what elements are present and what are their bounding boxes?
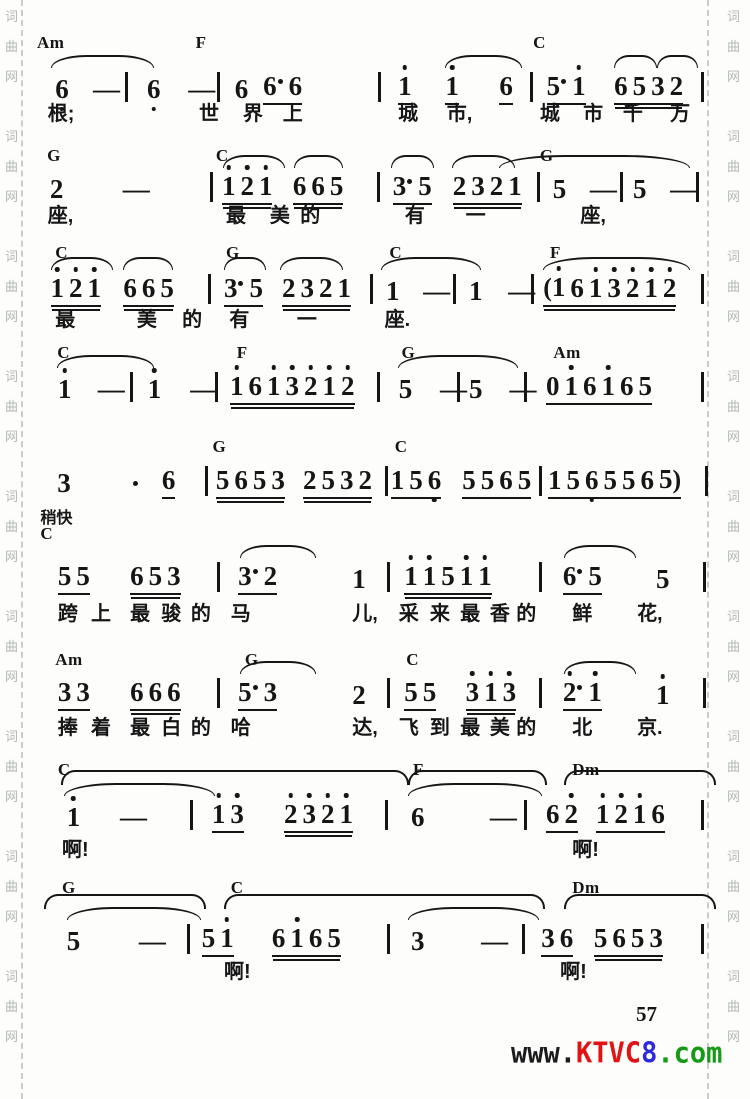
note-digit: 1 — [404, 562, 418, 590]
note: 3 — [57, 469, 71, 497]
note-group — [378, 70, 381, 103]
note-digit: 2 — [614, 800, 628, 828]
slur-arc — [564, 894, 717, 909]
note: 6 — [614, 72, 628, 100]
note: 0 — [546, 372, 560, 400]
note-group — [385, 464, 388, 497]
note-group — [524, 370, 527, 403]
note: 3 — [466, 678, 480, 706]
note-digit: 1 — [445, 72, 459, 100]
lyric-syllable: 美 — [490, 718, 510, 738]
chord-label: C — [406, 650, 419, 670]
octave-dot-above — [309, 365, 314, 370]
note-group — [620, 170, 623, 203]
note-group: 2321 — [282, 272, 351, 307]
note-group: 13 — [212, 798, 244, 833]
octave-dot-above — [235, 793, 240, 798]
note-digit: 3 — [224, 274, 238, 302]
slur-arc — [240, 545, 316, 558]
note-digit: 1 — [588, 678, 602, 706]
note-digit: 2 — [50, 175, 64, 203]
note-digit: 6 — [546, 800, 560, 828]
note-digit: 6 — [570, 274, 584, 302]
note-group: 6 — [55, 70, 69, 103]
side-watermark-char: 词 — [727, 610, 740, 623]
note-group: 5 — [469, 370, 483, 403]
barline — [387, 924, 390, 954]
note: 5 — [202, 924, 216, 952]
side-watermark-char: 词 — [5, 250, 18, 263]
note-group: 1 — [148, 370, 162, 403]
note-group: 6 — [235, 70, 249, 103]
note: 6 — [499, 466, 513, 494]
chord-label: F — [237, 343, 248, 363]
octave-dot-above — [649, 267, 654, 272]
note-group — [539, 676, 542, 709]
note: 1 — [230, 372, 244, 400]
octave-dot-above — [600, 793, 605, 798]
note-digit: 0 — [546, 372, 560, 400]
octave-dot-above — [403, 65, 408, 70]
note: 5 — [481, 466, 495, 494]
note-group: — — [98, 370, 123, 403]
note-group: 1 — [656, 676, 670, 709]
note-digit: 2 — [358, 466, 372, 494]
watermark-text-segment: 8 — [641, 1037, 657, 1070]
note: 2 — [453, 172, 467, 200]
note-digit: 3 — [286, 372, 300, 400]
note-digit: 6 — [499, 72, 513, 100]
note-digit: 3 — [301, 274, 315, 302]
octave-dot-above — [569, 365, 574, 370]
augmentation-dot — [278, 79, 283, 84]
note-digit: 1 — [484, 678, 498, 706]
note: 1 — [478, 562, 492, 590]
octave-dot-above — [326, 793, 331, 798]
note-digit: 3 — [167, 562, 181, 590]
note-group: 1565565) — [548, 464, 681, 499]
note: 5 — [638, 372, 652, 400]
note-digit: 5 — [659, 465, 673, 493]
side-watermark-char: 曲 — [727, 280, 740, 293]
lyric-syllable: 儿, — [352, 604, 378, 624]
side-watermark-char: 曲 — [5, 760, 18, 773]
note-digit: 5 — [409, 466, 423, 494]
note-digit: 3 — [503, 678, 517, 706]
barline — [524, 800, 527, 830]
note-group — [701, 70, 704, 103]
note-group: — — [123, 170, 148, 203]
octave-dot-above — [577, 65, 582, 70]
note-group — [705, 464, 708, 497]
lyric-syllable: 啊! — [224, 962, 251, 982]
note-digit: 2 — [303, 466, 317, 494]
note-group: 6 — [162, 464, 176, 499]
lyric-syllable: 最 — [55, 310, 75, 330]
note-group: — — [440, 370, 465, 403]
barline — [378, 72, 381, 102]
octave-dot-above — [152, 368, 157, 373]
note-digit: 6 — [640, 466, 654, 494]
note-digit: 5 — [481, 466, 495, 494]
note-group: 6 — [411, 798, 425, 831]
duration-dash: — — [190, 375, 215, 403]
note: 6 — [162, 466, 176, 494]
note-group: 156 — [391, 464, 442, 499]
note-group — [701, 922, 704, 955]
note-digit: 6 — [560, 924, 574, 952]
duration-dash: — — [98, 375, 123, 403]
lyric-syllable: 马 — [231, 604, 251, 624]
note-digit: 5 — [633, 175, 647, 203]
note: 5 — [58, 562, 72, 590]
note: 5 — [249, 274, 263, 302]
note: 5 — [238, 678, 259, 706]
note: 6 — [640, 466, 654, 494]
note-digit: 1 — [391, 466, 405, 494]
note-digit: 6 — [234, 466, 248, 494]
note-group: (1613212 — [543, 272, 676, 307]
note-group — [531, 272, 534, 305]
note-digit: 5 — [633, 72, 647, 100]
note-group: — — [670, 170, 695, 203]
note: 2 — [319, 274, 333, 302]
octave-dot-above — [593, 267, 598, 272]
note-group: 55 — [404, 676, 436, 711]
barline — [205, 466, 208, 496]
barline — [215, 372, 218, 402]
note: 5 — [399, 375, 413, 403]
octave-dot-below — [152, 107, 157, 112]
note-group: — — [93, 70, 118, 103]
note-digit: 3 — [264, 678, 278, 706]
barline — [696, 172, 699, 202]
note-group — [130, 370, 133, 403]
note-group: 5 — [67, 922, 81, 955]
octave-dot-below — [589, 498, 594, 503]
note-group — [539, 560, 542, 593]
note-group: 6 — [147, 70, 161, 103]
note: 1 — [148, 375, 162, 403]
barline — [539, 466, 542, 496]
side-watermark-char: 网 — [5, 910, 18, 923]
close-parenthesis: ) — [672, 465, 681, 494]
note: 1 — [589, 274, 603, 302]
side-watermark-char: 网 — [727, 430, 740, 443]
note-group: 65 — [563, 560, 602, 595]
side-watermark-char: 曲 — [727, 160, 740, 173]
note: 5 — [327, 924, 341, 952]
chord-label: Am — [553, 343, 580, 363]
note-digit: 1 — [267, 372, 281, 400]
note: 1 — [548, 466, 562, 494]
note-digit: 6 — [428, 466, 442, 494]
note: 5 — [553, 175, 567, 203]
note-group: 1 — [352, 560, 366, 593]
side-watermark-char: 网 — [727, 310, 740, 323]
note-digit: 5 — [656, 565, 670, 593]
note-group: 3 — [411, 922, 425, 955]
note-group: 62 — [546, 798, 578, 833]
octave-dot-above — [450, 65, 455, 70]
octave-dot-above — [427, 555, 432, 560]
sheet-music-page: 词曲网词曲网词曲网词曲网词曲网词曲网词曲网词曲网词曲网 词曲网词曲网词曲网词曲网… — [0, 0, 750, 1099]
lyric-syllable: 的 — [182, 310, 202, 330]
watermark-text-segment: KTVC — [576, 1037, 641, 1070]
note: 5 — [216, 466, 230, 494]
note-digit: 1 — [596, 800, 610, 828]
note-group: 3 — [57, 464, 71, 497]
octave-dot-above — [507, 671, 512, 676]
note-digit: 5 — [76, 562, 90, 590]
side-watermark-char: 词 — [5, 130, 18, 143]
note: 5 — [76, 562, 90, 590]
note-group — [537, 170, 540, 203]
lyric-syllable: 最 — [130, 718, 150, 738]
lyric-syllable: 的 — [191, 604, 211, 624]
note: 6 — [289, 72, 303, 100]
note-digit: 6 — [123, 274, 137, 302]
note: 5 — [588, 562, 602, 590]
chord-label: C — [40, 524, 53, 544]
note-digit: 1 — [220, 924, 234, 952]
barline — [705, 466, 708, 496]
chord-label: C — [533, 33, 546, 53]
note-group: — — [423, 272, 448, 305]
barline — [377, 172, 380, 202]
note-digit: 1 — [212, 800, 226, 828]
note-digit: 5 — [404, 678, 418, 706]
chord-label: F — [196, 33, 207, 53]
note: 6 — [263, 72, 284, 100]
note: 6 — [130, 562, 144, 590]
octave-dot-above — [409, 555, 414, 560]
note-digit: 5 — [462, 466, 476, 494]
note-digit: 1 — [323, 372, 337, 400]
note: 6 — [620, 372, 634, 400]
note-group — [217, 560, 220, 593]
barline — [539, 678, 542, 708]
note-group: 665 — [293, 170, 344, 205]
note-digit: 6 — [311, 172, 325, 200]
note-group: — — [188, 70, 213, 103]
side-watermark-char: 词 — [727, 130, 740, 143]
note-group — [208, 272, 211, 305]
lyric-syllable: 座. — [385, 310, 411, 330]
note-group: 1 — [58, 370, 72, 403]
note: 2 — [358, 466, 372, 494]
note-group: 5 — [656, 560, 670, 593]
slur-arc — [240, 661, 316, 674]
note-group — [205, 464, 208, 497]
note-digit: 3 — [76, 678, 90, 706]
note-digit: 5 — [603, 466, 617, 494]
note-group — [387, 676, 390, 709]
barline — [385, 800, 388, 830]
lyric-syllable: 上 — [283, 104, 303, 124]
duration-dash: — — [508, 277, 533, 305]
side-watermark-char: 网 — [5, 70, 18, 83]
note-group — [210, 170, 213, 203]
note: 5 — [330, 172, 344, 200]
note: 3 — [340, 466, 354, 494]
note-group: 1 — [386, 272, 400, 305]
side-watermark-char: 词 — [727, 730, 740, 743]
side-watermark-char: 曲 — [5, 640, 18, 653]
note-group: 1 — [67, 798, 81, 831]
barline — [530, 72, 533, 102]
octave-dot-above — [216, 793, 221, 798]
octave-dot-above — [612, 267, 617, 272]
side-watermark-char: 词 — [5, 970, 18, 983]
duration-dash: — — [139, 927, 164, 955]
note: 2 — [303, 466, 317, 494]
note-digit: 5 — [202, 924, 216, 952]
note: 1 — [460, 562, 474, 590]
note-digit: 3 — [651, 72, 665, 100]
slur-arc — [408, 907, 538, 920]
note-group — [530, 70, 533, 103]
octave-dot-above — [74, 267, 79, 272]
barline — [370, 274, 373, 304]
note-group: 5565 — [462, 464, 531, 499]
octave-dot-above — [289, 793, 294, 798]
octave-dot-above — [225, 917, 230, 922]
note-digit: 5 — [423, 678, 437, 706]
note: 3 — [607, 274, 621, 302]
note-digit: 1 — [230, 372, 244, 400]
lyric-syllable: 鲜 — [572, 604, 592, 624]
note: 2 — [563, 678, 584, 706]
octave-dot-above — [567, 671, 572, 676]
note: 6 — [499, 72, 513, 100]
note: 5 — [518, 466, 532, 494]
note: 1 — [222, 172, 236, 200]
note: 5) — [659, 465, 681, 494]
note: 1 — [352, 565, 366, 593]
note-group: 6165 — [272, 922, 341, 957]
note: 5 — [594, 924, 608, 952]
note-digit: 6 — [612, 924, 626, 952]
note: 1 — [88, 274, 102, 302]
lyric-syllable: 世 — [199, 104, 219, 124]
note-digit: 5 — [631, 924, 645, 952]
duration-dash: — — [490, 803, 515, 831]
note-group — [215, 370, 218, 403]
note-group: 53 — [238, 676, 277, 711]
note-group — [703, 676, 706, 709]
note: 3 — [264, 678, 278, 706]
note: 1 — [338, 274, 352, 302]
lyric-syllable: 啊! — [572, 840, 599, 860]
augmentation-dot — [253, 569, 258, 574]
lyric-syllable: 座, — [48, 206, 74, 226]
note-digit: 1 — [633, 800, 647, 828]
note: 1 — [656, 681, 670, 709]
note-group: 665 — [123, 272, 174, 307]
note-digit: 1 — [338, 274, 352, 302]
note-digit: 2 — [319, 274, 333, 302]
lyric-syllable: 白 — [161, 718, 181, 738]
note: 2 — [304, 372, 318, 400]
lyric-syllable: 来 — [430, 604, 450, 624]
note: 5 — [404, 678, 418, 706]
note-digit: 2 — [626, 274, 640, 302]
note-group: — — [190, 370, 215, 403]
note-digit: 3 — [57, 469, 71, 497]
note: 3 — [286, 372, 300, 400]
note-digit: 2 — [663, 274, 677, 302]
note-group — [524, 798, 527, 831]
lyric-syllable: 最 — [460, 604, 480, 624]
note-digit: 6 — [263, 72, 277, 100]
barline — [537, 172, 540, 202]
note: 5 — [67, 927, 81, 955]
slur-arc — [294, 155, 343, 168]
note: 6 — [130, 678, 144, 706]
note-digit: 1 — [508, 172, 522, 200]
note-digit: 1 — [601, 372, 615, 400]
note: 2 — [50, 175, 64, 203]
note: 6 — [651, 800, 665, 828]
note-group: 33 — [58, 676, 90, 711]
slur-arc — [564, 661, 637, 674]
augmentation-dot — [577, 569, 582, 574]
side-watermark-char: 网 — [727, 190, 740, 203]
barline — [385, 466, 388, 496]
note-group: 6532 — [614, 70, 683, 105]
lyric-syllable: 一 — [297, 310, 317, 330]
duration-dash: — — [440, 375, 465, 403]
note-digit: 6 — [272, 924, 286, 952]
note: 5 — [603, 466, 617, 494]
note-digit: 5 — [469, 375, 483, 403]
lyric-syllable: 采 — [399, 604, 419, 624]
barline — [387, 562, 390, 592]
note: 1 — [267, 372, 281, 400]
octave-dot-above — [226, 165, 231, 170]
slur-arc — [224, 257, 267, 270]
side-watermark-char: 曲 — [5, 160, 18, 173]
note: 3 — [303, 800, 317, 828]
lyric-syllable: 美 — [137, 310, 157, 330]
lyric-syllable: 根; — [48, 104, 75, 124]
note-digit: 6 — [293, 172, 307, 200]
octave-dot-above — [235, 365, 240, 370]
side-watermark-char: 网 — [5, 430, 18, 443]
lyric-syllable: 骏 — [161, 604, 181, 624]
note-digit: 2 — [564, 800, 578, 828]
note: 1 — [564, 372, 578, 400]
note-digit: 1 — [478, 562, 492, 590]
note-group: — — [508, 272, 533, 305]
note-group: 6 — [499, 70, 513, 105]
note: 3 — [271, 466, 285, 494]
note-digit: 3 — [411, 927, 425, 955]
augmentation-dot — [407, 179, 412, 184]
note-digit: 6 — [289, 72, 303, 100]
note-digit: 5 — [253, 466, 267, 494]
note-digit: 2 — [69, 274, 83, 302]
barline — [208, 274, 211, 304]
note-digit: 3 — [340, 466, 354, 494]
octave-dot-above — [556, 266, 561, 271]
note-digit: 2 — [264, 562, 278, 590]
note: 3 — [167, 562, 181, 590]
octave-dot-above — [660, 674, 665, 679]
octave-dot-above — [606, 365, 611, 370]
note: 1 — [596, 800, 610, 828]
